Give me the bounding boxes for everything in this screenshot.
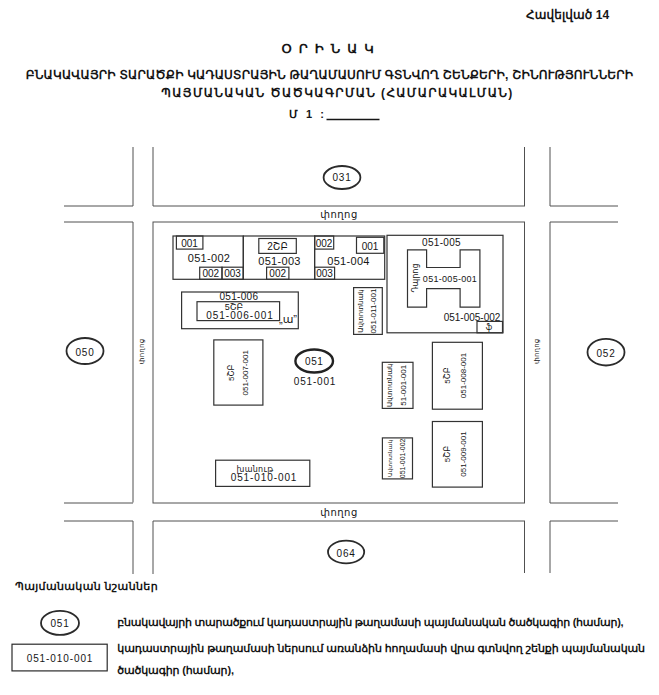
svg-text:Պայմանական նշաններ: Պայմանական նշաններ	[15, 580, 158, 593]
svg-text:051-006-001: 051-006-001	[206, 310, 274, 321]
svg-text:5ՇԲ: 5ՇԲ	[443, 367, 452, 384]
svg-text:ծածկագիր (համար),: ծածկագիր (համար),	[117, 664, 234, 677]
svg-text:Ավտոտնակ: Ավտոտնակ	[387, 440, 393, 478]
svg-text:051: 051	[305, 356, 323, 367]
svg-text:002: 002	[202, 268, 219, 279]
svg-text:051-003: 051-003	[258, 255, 300, 267]
svg-text:փողոց: փողոց	[138, 339, 145, 365]
svg-text:5ՇԲ: 5ՇԲ	[227, 364, 236, 381]
svg-text:064: 064	[337, 548, 356, 559]
svg-text:051-010-001: 051-010-001	[27, 653, 94, 664]
svg-text:051-005: 051-005	[422, 237, 461, 248]
svg-text:Մ 1 :: Մ 1 :	[289, 108, 327, 120]
svg-text:ԲՆԱԿԱՎԱՅՐԻ ՏԱՐԱԾՔԻ ԿԱԴԱՍՏՐԱՅԻՆ: ԲՆԱԿԱՎԱՅՐԻ ՏԱՐԱԾՔԻ ԿԱԴԱՍՏՐԱՅԻՆ ԹԱՂԱՄԱՍՈՒ…	[26, 68, 634, 82]
svg-text:003: 003	[316, 268, 333, 279]
svg-text:052: 052	[596, 348, 615, 359]
svg-text:003: 003	[224, 268, 241, 279]
svg-text:050: 050	[75, 347, 94, 358]
svg-text:5ՇԲ: 5ՇԲ	[443, 446, 452, 463]
svg-text:„ա”: „ա”	[279, 313, 297, 325]
svg-text:փողոց: փողոց	[320, 209, 358, 220]
svg-text:002: 002	[316, 238, 333, 249]
svg-text:փողոց: փողոց	[320, 507, 358, 518]
svg-text:051-005-001: 051-005-001	[423, 274, 477, 284]
svg-text:001: 001	[362, 241, 379, 252]
svg-text:51-001-001: 51-001-001	[399, 364, 408, 405]
svg-text:051-001: 051-001	[294, 376, 336, 387]
svg-text:Օ Ր Ի Ն Ա Կ: Օ Ր Ի Ն Ա Կ	[282, 41, 376, 56]
svg-text:051-010-001: 051-010-001	[231, 472, 298, 483]
svg-text:051-004: 051-004	[327, 255, 369, 267]
svg-text:կադաստրային թաղամասի ներսում ա: կադաստրային թաղամասի ներսում առանձին հող…	[117, 642, 645, 655]
svg-text:051-002: 051-002	[188, 252, 230, 264]
svg-text:փողոց: փողոց	[533, 339, 540, 365]
svg-text:051-009-001: 051-009-001	[459, 431, 468, 477]
svg-text:Դպրոց: Դպրոց	[411, 263, 420, 292]
svg-text:001: 001	[181, 238, 198, 249]
svg-text:2ՇԲ: 2ՇԲ	[267, 241, 287, 252]
svg-text:051: 051	[50, 618, 69, 629]
svg-text:051-001-002: 051-001-002	[399, 438, 406, 478]
svg-text:031: 031	[332, 172, 351, 183]
svg-text:051-011-001: 051-011-001	[369, 288, 378, 333]
svg-text:Հավելված 14: Հավելված 14	[526, 8, 610, 23]
svg-text:051-008-001: 051-008-001	[459, 352, 468, 398]
svg-text:051-007-001: 051-007-001	[241, 350, 250, 396]
svg-text:ֆ: ֆ	[486, 323, 493, 332]
svg-text:Ավտոտնակ: Ավտոտնակ	[386, 364, 393, 408]
svg-text:բնակավայրի տարածքում կադաստրայ: բնակավայրի տարածքում կադաստրային թաղամաս…	[117, 616, 623, 629]
svg-text:ՊԱՅՄԱՆԱԿԱՆ ԾԱԾԿԱԳՐՄԱՆ (ՀԱՄԱՐԱԿ: ՊԱՅՄԱՆԱԿԱՆ ԾԱԾԿԱԳՐՄԱՆ (ՀԱՄԱՐԱԿԱԼՄԱՆ)	[161, 86, 513, 100]
svg-text:051-006: 051-006	[219, 291, 258, 302]
svg-text:Ավտոտնակ: Ավտոտնակ	[357, 289, 364, 333]
svg-text:002: 002	[269, 268, 286, 279]
